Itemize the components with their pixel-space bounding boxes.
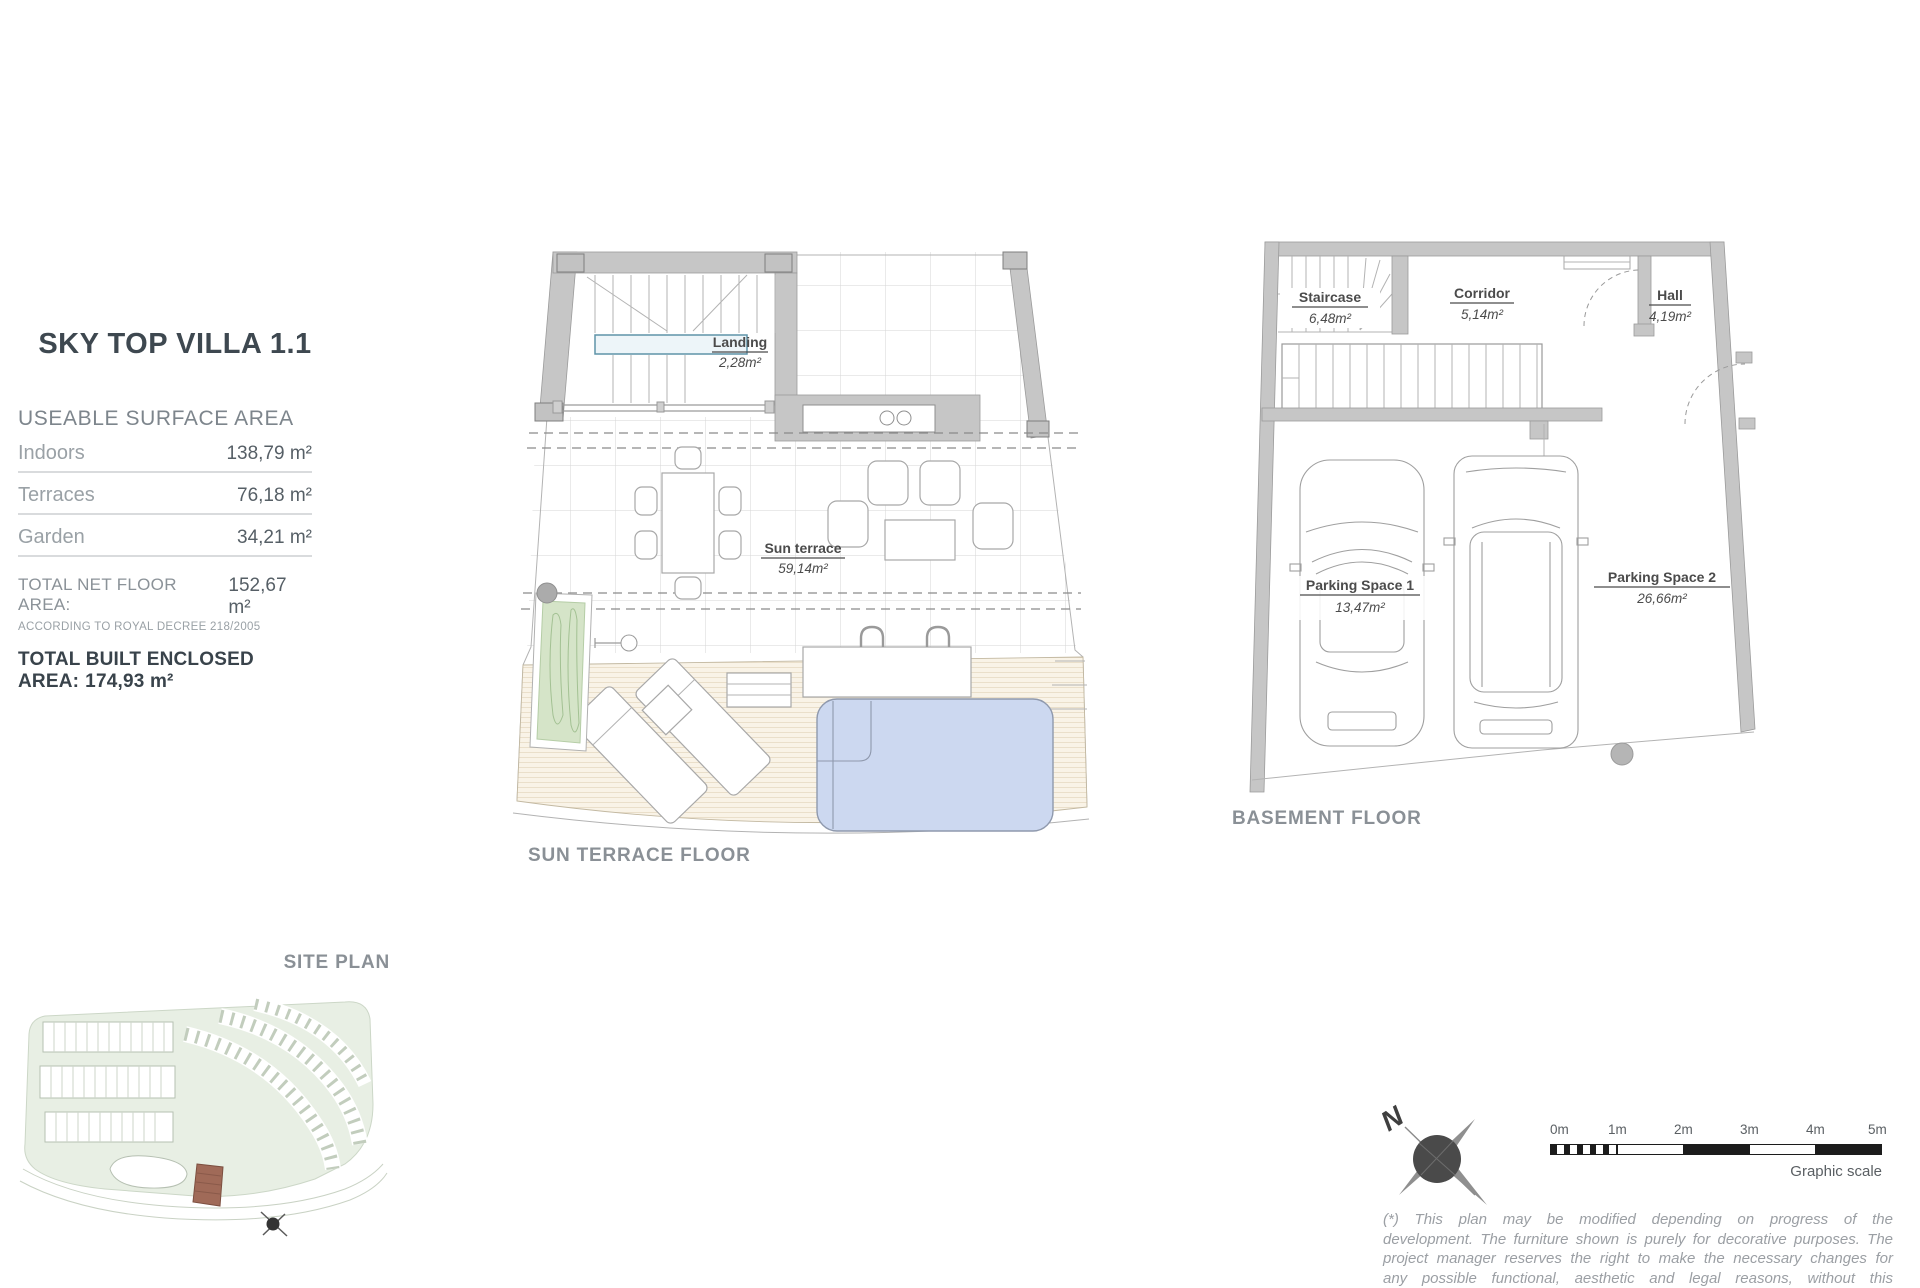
site-plan: SITE PLAN (15, 952, 390, 1242)
car-suv (1444, 456, 1588, 748)
basement-top-wall (1265, 242, 1724, 256)
stair-enclosure-top-wall (553, 252, 797, 273)
door-swing-hall (1685, 364, 1745, 424)
room-label-staircase: Staircase (1299, 289, 1361, 305)
page-title: SKY TOP VILLA 1.1 (38, 328, 312, 361)
door-jamb (1739, 418, 1755, 429)
door-jamb (1736, 352, 1752, 363)
surface-area-panel: SKY TOP VILLA 1.1 USEABLE SURFACE AREA I… (18, 328, 312, 693)
area-row-value: 34,21 m² (237, 527, 312, 549)
scale-ticks: 0m 1m 2m 3m 4m 5m (1550, 1122, 1895, 1140)
basement-right-wall (1710, 242, 1755, 732)
total-built-area: TOTAL BUILT ENCLOSED AREA:174,93 m² (18, 649, 312, 693)
door-swing-corridor (1584, 270, 1640, 326)
room-area-staircase: 6,48m² (1309, 311, 1352, 326)
room-area-parking-1: 13,47m² (1335, 600, 1385, 615)
site-mini-compass-icon (261, 1212, 287, 1236)
area-row-label: Terraces (18, 484, 95, 507)
surface-area-heading: USEABLE SURFACE AREA (18, 407, 312, 431)
room-label-sun-terrace: Sun terrace (764, 540, 841, 556)
balustrade-post (765, 401, 774, 413)
compass-icon (1399, 1119, 1487, 1205)
basement-floor-plan: Staircase 6,48m² Corridor 5,14m² Hall 4,… (1242, 232, 1802, 812)
area-row-terraces: Terraces 76,18 m² (18, 473, 312, 515)
corner-column (765, 254, 792, 272)
column (1530, 421, 1548, 439)
area-row-value: 76,18 m² (237, 485, 312, 507)
graphic-scale: 0m 1m 2m 3m 4m 5m Graphic scale (1550, 1122, 1895, 1180)
room-label-parking-1: Parking Space 1 (1306, 577, 1414, 593)
bbq-burner (897, 411, 911, 425)
scale-bar (1550, 1144, 1882, 1155)
room-area-hall: 4,19m² (1649, 309, 1692, 324)
room-area-parking-2: 26,66m² (1636, 591, 1687, 606)
balustrade-post (553, 401, 562, 413)
disclaimer-text: (*) This plan may be modified depending … (1383, 1210, 1893, 1288)
sun-terrace-floor-plan: Landing 2,28m² Sun terrace 59,14m² (435, 195, 1095, 845)
room-label-hall: Hall (1657, 287, 1683, 303)
room-label-corridor: Corridor (1454, 285, 1511, 301)
stair-enclosure-right-wall (775, 273, 797, 405)
stair-enclosure-left-wall (539, 252, 577, 419)
room-label-landing: Landing (713, 334, 767, 350)
area-row-value: 138,79 m² (226, 443, 312, 465)
site-plan-caption: SITE PLAN (284, 952, 390, 974)
room-label-parking-2: Parking Space 2 (1608, 569, 1716, 585)
bbq-burner (880, 411, 894, 425)
corner-column (1027, 421, 1049, 437)
room-area-corridor: 5,14m² (1461, 307, 1504, 322)
scale-caption: Graphic scale (1550, 1163, 1882, 1180)
floorplan-page: { "info_panel": { "title": "SKY TOP VILL… (0, 0, 1920, 1280)
swimming-pool (817, 699, 1053, 831)
bbq-counter (803, 405, 935, 432)
area-row-label: Indoors (18, 442, 85, 465)
staircase-wall (1392, 256, 1408, 334)
site-plan-drawing (15, 974, 390, 1239)
basement-floor-caption: BASEMENT FLOOR (1232, 808, 1422, 830)
area-row-garden: Garden 34,21 m² (18, 515, 312, 557)
north-arrow: N (1375, 1095, 1505, 1225)
area-row-indoors: Indoors 138,79 m² (18, 431, 312, 473)
room-area-landing: 2,28m² (718, 355, 762, 370)
room-area-sun-terrace: 59,14m² (778, 561, 828, 576)
corner-column (1003, 252, 1027, 269)
sun-terrace-floor-caption: SUN TERRACE FLOOR (528, 845, 751, 867)
drain-column (1611, 743, 1633, 765)
north-label: N (1375, 1100, 1409, 1137)
column (537, 583, 557, 603)
area-row-label: Garden (18, 526, 85, 549)
total-net-floor-area: TOTAL NET FLOOR AREA: 152,67 m² (18, 575, 312, 619)
wall-stub (1634, 324, 1654, 336)
royal-decree-note: ACCORDING TO ROYAL DECREE 218/2005 (18, 621, 312, 633)
garage-separating-wall (1262, 408, 1602, 421)
deck-bench (727, 673, 791, 707)
pool-counter (803, 647, 971, 697)
balustrade-post (657, 402, 664, 412)
corner-column (557, 254, 584, 272)
basement-left-wall (1250, 242, 1279, 792)
